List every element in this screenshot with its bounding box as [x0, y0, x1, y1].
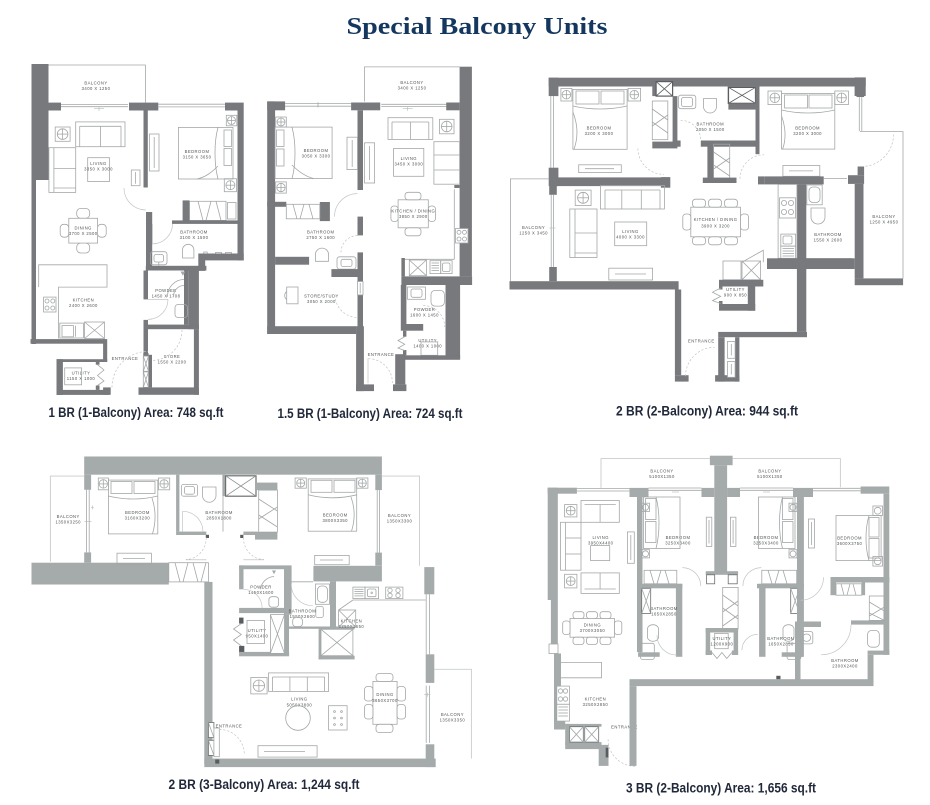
- svg-text:BATHROOM: BATHROOM: [180, 230, 208, 235]
- svg-text:3250X2850: 3250X2850: [583, 702, 609, 707]
- svg-text:1350X3250: 1350X3250: [55, 520, 81, 525]
- svg-text:KITCHEN / DINING: KITCHEN / DINING: [694, 217, 738, 222]
- svg-text:BATHROOM: BATHROOM: [289, 609, 317, 614]
- svg-text:3700X3050: 3700X3050: [580, 628, 606, 633]
- svg-text:3600X3750: 3600X3750: [837, 541, 863, 546]
- svg-text:950X1400: 950X1400: [246, 634, 269, 639]
- svg-text:LIVING: LIVING: [291, 697, 307, 702]
- svg-text:3850 X 2900: 3850 X 2900: [399, 214, 428, 219]
- svg-text:1350X3350: 1350X3350: [440, 718, 466, 723]
- svg-text:BEDROOM: BEDROOM: [323, 513, 348, 518]
- svg-text:3700 X 2500: 3700 X 2500: [69, 231, 98, 236]
- svg-text:ENTRANCE: ENTRANCE: [112, 356, 139, 361]
- svg-text:BATHROOM: BATHROOM: [814, 232, 842, 237]
- svg-text:BALCONY: BALCONY: [758, 469, 781, 474]
- svg-text:5100X1350: 5100X1350: [649, 474, 675, 479]
- svg-text:3800X3350: 3800X3350: [322, 518, 348, 523]
- svg-text:KITCHEN: KITCHEN: [73, 298, 95, 303]
- svg-text:BEDROOM: BEDROOM: [304, 148, 329, 153]
- svg-text:1650X2850: 1650X2850: [768, 642, 794, 647]
- svg-text:3160X3200: 3160X3200: [125, 516, 151, 521]
- svg-text:3400 X 1250: 3400 X 1250: [82, 86, 111, 91]
- svg-text:4000 X 3300: 4000 X 3300: [616, 235, 645, 240]
- svg-text:2 BR (2-Balcony) Area: 944 sq.: 2 BR (2-Balcony) Area: 944 sq.ft: [616, 404, 798, 419]
- svg-text:POWDER: POWDER: [155, 288, 177, 293]
- svg-text:3900 X 3200: 3900 X 3200: [701, 224, 730, 229]
- svg-text:Special Balcony Units: Special Balcony Units: [347, 13, 608, 40]
- svg-text:BALCONY: BALCONY: [84, 81, 107, 86]
- svg-text:1600 X 1450: 1600 X 1450: [410, 313, 439, 318]
- svg-text:BATHROOM: BATHROOM: [650, 606, 678, 611]
- svg-text:BALCONY: BALCONY: [522, 225, 545, 230]
- svg-text:UTILITY: UTILITY: [713, 636, 732, 641]
- svg-text:1450X1600: 1450X1600: [248, 590, 274, 595]
- svg-text:1150 X 1000: 1150 X 1000: [67, 376, 96, 381]
- svg-text:3100 X 1500: 3100 X 1500: [180, 235, 209, 240]
- svg-text:BATHROOM: BATHROOM: [205, 510, 233, 515]
- svg-text:BEDROOM: BEDROOM: [666, 535, 691, 540]
- svg-text:900 X 850: 900 X 850: [724, 293, 747, 298]
- svg-text:BALCONY: BALCONY: [388, 513, 411, 518]
- svg-text:1550 X 2200: 1550 X 2200: [158, 360, 187, 365]
- svg-text:BEDROOM: BEDROOM: [795, 126, 820, 131]
- svg-text:ENTRANCE: ENTRANCE: [688, 339, 715, 344]
- svg-text:LIVING: LIVING: [622, 229, 638, 234]
- svg-text:3050 X 3300: 3050 X 3300: [302, 154, 331, 159]
- svg-text:3400 X 1250: 3400 X 1250: [398, 86, 427, 91]
- svg-text:5050X3800: 5050X3800: [287, 703, 313, 708]
- svg-text:2050 X 1500: 2050 X 1500: [696, 127, 725, 132]
- svg-text:2750 X 1600: 2750 X 1600: [306, 235, 335, 240]
- svg-text:1250 X 3450: 1250 X 3450: [519, 231, 548, 236]
- svg-text:3350X2650: 3350X2650: [339, 624, 365, 629]
- svg-text:BALCONY: BALCONY: [441, 712, 464, 717]
- svg-text:LIVING: LIVING: [401, 156, 417, 161]
- svg-text:BATHROOM: BATHROOM: [697, 122, 725, 127]
- svg-text:LIVING: LIVING: [90, 161, 106, 166]
- svg-text:ENTRANCE: ENTRANCE: [368, 352, 395, 357]
- svg-text:3150 X 3650: 3150 X 3650: [183, 155, 212, 160]
- svg-text:1 BR (1-Balcony) Area: 748 sq.: 1 BR (1-Balcony) Area: 748 sq.ft: [49, 405, 224, 420]
- svg-text:3 BR (2-Balcony) Area: 1,656 s: 3 BR (2-Balcony) Area: 1,656 sq.ft: [626, 781, 816, 796]
- svg-text:KITCHEN: KITCHEN: [585, 696, 607, 701]
- svg-text:UTILITY: UTILITY: [72, 371, 91, 376]
- svg-text:1200X900: 1200X900: [711, 642, 734, 647]
- svg-text:3050 X 2000: 3050 X 2000: [307, 299, 336, 304]
- svg-text:3250X3400: 3250X3400: [665, 541, 691, 546]
- svg-text:3200 X 3000: 3200 X 3000: [585, 131, 614, 136]
- svg-text:BALCONY: BALCONY: [872, 214, 895, 219]
- svg-text:BEDROOM: BEDROOM: [754, 535, 779, 540]
- svg-text:2400 X 2600: 2400 X 2600: [69, 303, 98, 308]
- svg-text:DINING: DINING: [376, 692, 393, 697]
- svg-text:BEDROOM: BEDROOM: [587, 126, 612, 131]
- svg-text:BALCONY: BALCONY: [400, 80, 423, 85]
- svg-text:1250 X 4950: 1250 X 4950: [870, 220, 899, 225]
- svg-text:STORE/STUDY: STORE/STUDY: [304, 294, 339, 299]
- svg-text:1450 X 1708: 1450 X 1708: [152, 294, 181, 299]
- svg-text:3450 X 3000: 3450 X 3000: [394, 162, 423, 167]
- svg-text:BALCONY: BALCONY: [57, 514, 80, 519]
- svg-text:DINING: DINING: [584, 622, 601, 627]
- svg-text:5100X1350: 5100X1350: [757, 474, 783, 479]
- svg-text:DINING: DINING: [75, 226, 92, 231]
- svg-text:BEDROOM: BEDROOM: [837, 535, 862, 540]
- svg-text:BATHROOM: BATHROOM: [307, 230, 335, 235]
- svg-text:3950X4400: 3950X4400: [588, 541, 614, 546]
- svg-text:2850X1800: 2850X1800: [206, 516, 232, 521]
- svg-text:KITCHEN / DINING: KITCHEN / DINING: [391, 209, 435, 214]
- svg-text:BATHROOM: BATHROOM: [831, 658, 859, 663]
- svg-text:2 BR (3-Balcony) Area: 1,244 s: 2 BR (3-Balcony) Area: 1,244 sq.ft: [169, 777, 360, 792]
- svg-text:BALCONY: BALCONY: [650, 469, 673, 474]
- svg-text:3650X3700: 3650X3700: [372, 698, 398, 703]
- svg-text:UTILITY: UTILITY: [248, 628, 267, 633]
- svg-text:1650X2850: 1650X2850: [651, 612, 677, 617]
- svg-text:BEDROOM: BEDROOM: [185, 149, 210, 154]
- svg-text:LIVING: LIVING: [592, 535, 608, 540]
- svg-text:BEDROOM: BEDROOM: [125, 510, 150, 515]
- svg-text:UTILITY: UTILITY: [726, 287, 745, 292]
- svg-text:BATHROOM: BATHROOM: [767, 636, 795, 641]
- svg-text:1550 X 2600: 1550 X 2600: [814, 238, 843, 243]
- svg-text:3200 X 3000: 3200 X 3000: [793, 131, 822, 136]
- svg-text:3350 X 3000: 3350 X 3000: [84, 167, 113, 172]
- svg-text:1350X3300: 1350X3300: [387, 519, 413, 524]
- svg-text:2300X2400: 2300X2400: [832, 664, 858, 669]
- svg-text:3250X3400: 3250X3400: [753, 541, 779, 546]
- svg-text:1.5 BR (1-Balcony) Area: 724 s: 1.5 BR (1-Balcony) Area: 724 sq.ft: [278, 406, 463, 421]
